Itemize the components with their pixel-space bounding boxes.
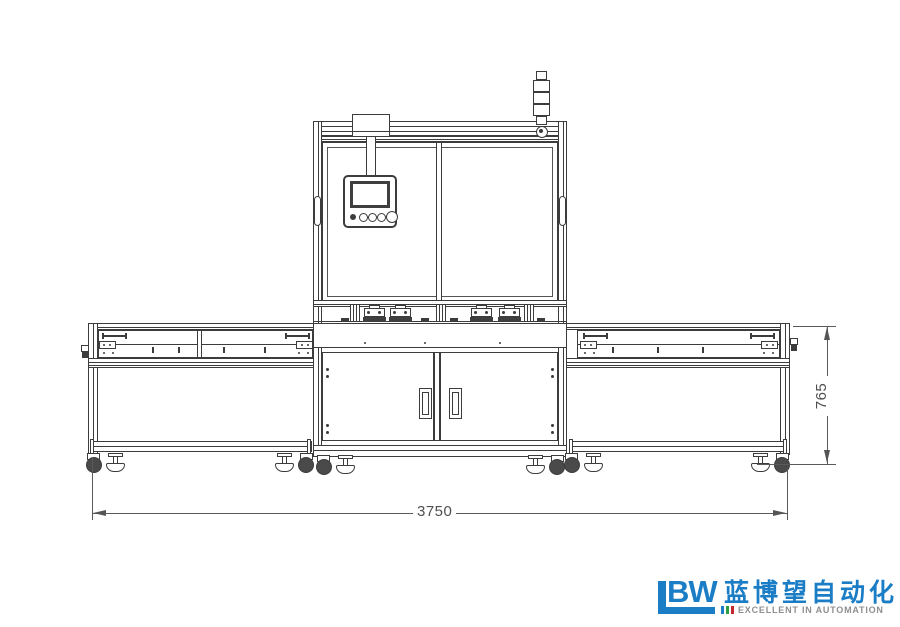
tower-segment	[533, 104, 550, 116]
logo-chinese-name: 蓝博望自动化	[724, 579, 898, 607]
hmi-button	[377, 213, 386, 222]
table-mid-rail	[88, 358, 314, 368]
rod-end	[285, 333, 287, 339]
dimension-arrow-up	[824, 327, 830, 340]
caster-wheel	[549, 459, 565, 475]
hinge-dot	[551, 431, 554, 434]
fascia-screw	[499, 342, 501, 344]
deck-mark	[537, 318, 545, 321]
rail-line	[567, 362, 789, 363]
deck-rail-segment	[524, 305, 534, 321]
screw-dot	[584, 344, 586, 346]
extension-line	[757, 464, 836, 465]
work-deck-baseline	[313, 321, 567, 322]
screw-dot	[766, 344, 768, 346]
technical-drawing-canvas: 3750 765 BW 蓝博望自动化 EXCELLENT IN AUTOMATI…	[0, 0, 900, 627]
mechanism-block	[761, 341, 778, 349]
tower-cap	[536, 71, 547, 80]
door-pull-left-slot	[422, 392, 429, 415]
dimension-arrow-right	[773, 510, 786, 516]
fixture-screw	[404, 311, 407, 314]
tower-mount-dot	[539, 129, 543, 133]
panel-split-line	[98, 344, 313, 345]
hinge-dot	[326, 431, 329, 434]
panel-tick	[657, 347, 659, 353]
rail-line	[314, 450, 566, 451]
actuator-rod	[287, 335, 308, 337]
screw-dot	[112, 352, 114, 354]
caster-assembly	[564, 453, 608, 474]
panel-tick	[178, 347, 180, 353]
table-bottom-rail	[92, 441, 312, 452]
post-line	[563, 122, 564, 456]
rail-line	[572, 446, 784, 447]
rail-line	[89, 327, 313, 328]
fixture-base	[498, 317, 521, 322]
table-top-rail	[566, 323, 790, 330]
rod-end	[102, 333, 104, 339]
fixture-screw	[513, 311, 516, 314]
leveling-foot	[336, 465, 355, 474]
glass-door-divider	[436, 142, 442, 302]
cabinet-post-right	[558, 121, 567, 457]
hmi-arm	[366, 137, 376, 176]
actuator-rod	[585, 335, 606, 337]
fascia-screw	[364, 342, 366, 344]
tower-segment	[533, 80, 550, 92]
fixture-base	[389, 317, 412, 322]
rail-end-plate	[90, 439, 94, 454]
caster-wheel	[86, 457, 102, 473]
screw-dot	[772, 344, 774, 346]
screw-dot	[593, 352, 595, 354]
leveling-foot	[106, 463, 125, 472]
fixture-screw	[474, 311, 477, 314]
hinge-dot	[551, 424, 554, 427]
caster-wheel	[564, 457, 580, 473]
door-handle-right	[559, 196, 566, 226]
deck-rail-segment	[350, 305, 360, 321]
screw-dot	[763, 352, 765, 354]
caster-wheel	[316, 459, 332, 475]
rail-line	[93, 446, 311, 447]
rod-end	[773, 333, 775, 339]
rail-line	[567, 365, 789, 366]
table-leg	[88, 323, 98, 455]
side-bracket-tip	[791, 345, 797, 351]
panel-tick	[702, 347, 704, 353]
rail-line	[89, 362, 313, 363]
dimension-arrow-left	[93, 510, 106, 516]
work-fixture	[389, 305, 413, 322]
screw-dot	[301, 344, 303, 346]
end-mechanism	[580, 331, 610, 357]
logo-mark-text: BW	[667, 578, 717, 606]
screw-dot	[103, 344, 105, 346]
caster-assembly	[270, 453, 314, 474]
screw-dot	[103, 352, 105, 354]
dimension-label-width: 3750	[413, 503, 456, 520]
hmi-mount-bracket	[352, 114, 390, 137]
door-handle-left	[314, 196, 321, 226]
bracket-line	[353, 131, 389, 132]
logo-accent-bar-red	[731, 606, 734, 614]
end-mechanism	[283, 331, 313, 357]
rail-end-plate	[569, 439, 573, 454]
side-bracket-tip	[82, 352, 88, 358]
rod-end	[750, 333, 752, 339]
mechanism-block	[580, 341, 597, 349]
table-bottom-rail	[571, 441, 785, 452]
end-mechanism	[99, 331, 129, 357]
rail-line	[320, 139, 560, 140]
table-mid-rail	[566, 358, 790, 368]
hinge-dot	[551, 375, 554, 378]
mechanism-block	[296, 341, 313, 349]
screw-dot	[590, 344, 592, 346]
fixture-screw	[378, 311, 381, 314]
deck-rail-segment	[436, 305, 446, 321]
hinge-dot	[326, 375, 329, 378]
screw-dot	[307, 344, 309, 346]
cabinet-door-left	[322, 352, 434, 441]
rail-end-plate	[307, 439, 311, 454]
hmi-screen	[350, 181, 390, 208]
fixture-base	[363, 317, 386, 322]
screw-dot	[307, 352, 309, 354]
fixture-base	[470, 317, 493, 322]
hmi-button	[359, 213, 368, 222]
screw-dot	[584, 352, 586, 354]
panel-tick	[264, 347, 266, 353]
panel-tick	[223, 347, 225, 353]
logo-accent-bar-blue	[721, 606, 724, 614]
dimension-arrow-down	[824, 450, 830, 463]
rod-end	[583, 333, 585, 339]
screw-dot	[109, 344, 111, 346]
table-leg	[780, 323, 790, 455]
logo-tagline: EXCELLENT IN AUTOMATION	[738, 605, 884, 615]
mechanism-block	[99, 341, 116, 349]
hmi-button-large	[386, 211, 398, 223]
caster-wheel	[298, 457, 314, 473]
caster-assembly	[316, 455, 360, 476]
deck-mark	[341, 318, 349, 321]
side-bracket	[790, 338, 798, 345]
fixture-screw	[393, 311, 396, 314]
extension-line	[787, 468, 788, 520]
hinge-dot	[326, 424, 329, 427]
panel-divider	[197, 330, 202, 358]
leveling-foot	[526, 465, 545, 474]
post-line	[93, 324, 94, 454]
hinge-dot	[551, 368, 554, 371]
fixture-screw	[485, 311, 488, 314]
deck-mark	[450, 318, 458, 321]
panel-tick	[152, 347, 154, 353]
end-mechanism	[748, 331, 778, 357]
cabinet-post-left	[313, 121, 322, 457]
deck-mark	[421, 318, 429, 321]
panel-tick	[612, 347, 614, 353]
table-top-rail	[88, 323, 314, 330]
leveling-foot	[275, 463, 294, 472]
fascia-screw	[424, 342, 426, 344]
post-line	[785, 324, 786, 454]
tower-base	[536, 116, 547, 125]
rod-end	[125, 333, 127, 339]
rod-end	[606, 333, 608, 339]
fixture-screw	[502, 311, 505, 314]
work-fixture	[363, 305, 387, 322]
actuator-rod	[104, 335, 125, 337]
hmi-button	[368, 213, 377, 222]
table-fascia	[313, 323, 567, 348]
hmi-button-power	[350, 214, 356, 220]
rail-line	[567, 327, 789, 328]
logo-accent-bar-green	[726, 606, 729, 614]
rail-end-plate	[783, 439, 787, 454]
rod-end	[308, 333, 310, 339]
screw-dot	[772, 352, 774, 354]
tower-segment	[533, 92, 550, 104]
screw-dot	[298, 352, 300, 354]
leveling-foot	[584, 463, 603, 472]
actuator-rod	[752, 335, 773, 337]
work-fixture	[498, 305, 522, 322]
work-fixture	[470, 305, 494, 322]
door-pull-right-slot	[452, 392, 459, 415]
hinge-dot	[326, 368, 329, 371]
side-bracket	[81, 345, 89, 352]
dimension-label-height: 765	[814, 376, 830, 416]
caster-assembly	[521, 455, 565, 476]
fixture-screw	[367, 311, 370, 314]
post-line	[318, 122, 319, 456]
rail-line	[89, 365, 313, 366]
